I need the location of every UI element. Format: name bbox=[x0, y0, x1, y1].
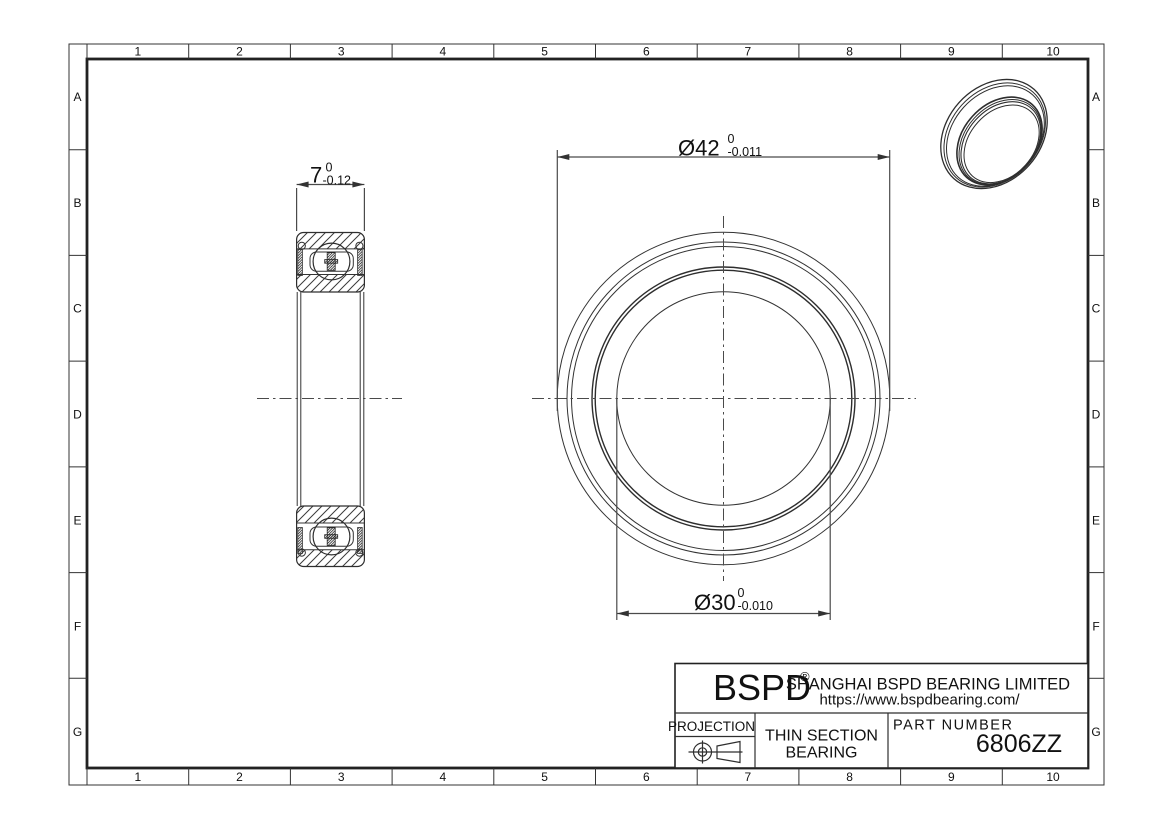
grid-col-label: 2 bbox=[236, 770, 243, 784]
grid-row-label: E bbox=[1092, 514, 1100, 528]
arrowhead-left bbox=[617, 611, 629, 617]
grid-row-label: G bbox=[73, 725, 82, 739]
grid-col-label: 7 bbox=[745, 770, 752, 784]
grid-row-label: B bbox=[1092, 196, 1100, 210]
grid-col-label: 7 bbox=[745, 45, 752, 59]
title-block: BSPD ® SHANGHAI BSPD BEARING LIMITED htt… bbox=[668, 664, 1088, 769]
grid-col-label: 10 bbox=[1046, 770, 1060, 784]
od-dim-tol-upper: 0 bbox=[728, 132, 735, 146]
grid-row-label: D bbox=[1092, 408, 1101, 422]
section-top-block bbox=[297, 233, 365, 293]
arrowhead-right bbox=[352, 182, 364, 188]
shield-left bbox=[298, 250, 303, 276]
bearing-drawing-svg: 1 2 3 4 5 6 7 8 9 10 1 2 3 4 5 6 7 8 9 1… bbox=[0, 0, 1170, 827]
grid-col-label: 10 bbox=[1046, 45, 1060, 59]
grid-col-label: 3 bbox=[338, 770, 345, 784]
arrowhead-right bbox=[818, 611, 830, 617]
arrowhead-right bbox=[878, 154, 890, 160]
grid-col-label: 9 bbox=[948, 45, 955, 59]
grid-col-label: 1 bbox=[135, 45, 142, 59]
projection-label: PROJECTION bbox=[668, 719, 755, 734]
shield-right bbox=[358, 250, 363, 276]
width-dimension: 7 0 -0.12 bbox=[297, 161, 365, 232]
arrowhead-left bbox=[297, 182, 309, 188]
grid-col-label: 6 bbox=[643, 45, 650, 59]
front-view: Ø42 0 -0.011 Ø30 0 -0.010 bbox=[532, 132, 916, 620]
grid-row-label: C bbox=[1092, 302, 1101, 316]
section-bottom-block bbox=[297, 506, 365, 567]
bore-dim-tol-upper: 0 bbox=[738, 586, 745, 600]
grid-col-label: 4 bbox=[440, 45, 447, 59]
width-dim-tol-lower: -0.12 bbox=[323, 174, 352, 188]
grid-col-label: 5 bbox=[541, 770, 548, 784]
grid-row-label: B bbox=[73, 196, 81, 210]
outer-ring-hatch bbox=[297, 233, 365, 249]
od-dim-value: Ø42 bbox=[678, 136, 720, 161]
rivet-flange bbox=[325, 535, 338, 539]
grid-col-label: 3 bbox=[338, 45, 345, 59]
grid-col-label: 2 bbox=[236, 45, 243, 59]
product-name-line2: BEARING bbox=[785, 745, 857, 762]
grid-col-label: 6 bbox=[643, 770, 650, 784]
od-dim-tol-lower: -0.011 bbox=[728, 145, 763, 159]
grid-row-label: E bbox=[73, 514, 81, 528]
outer-ring-hatch bbox=[297, 550, 365, 567]
part-number-value: 6806ZZ bbox=[976, 730, 1062, 758]
grid-row-label: F bbox=[1092, 620, 1099, 634]
isometric-view bbox=[919, 58, 1069, 210]
grid-row-label: G bbox=[1091, 725, 1100, 739]
rivet-flange bbox=[325, 260, 338, 264]
grid-row-labels-left: A B C D E F G bbox=[73, 90, 82, 739]
drawing-sheet: 1 2 3 4 5 6 7 8 9 10 1 2 3 4 5 6 7 8 9 1… bbox=[0, 0, 1170, 827]
grid-col-label: 8 bbox=[846, 770, 853, 784]
grid-row-label: A bbox=[73, 90, 81, 104]
grid-col-label: 4 bbox=[440, 770, 447, 784]
grid-col-label: 9 bbox=[948, 770, 955, 784]
company-website: https://www.bspdbearing.com/ bbox=[819, 692, 1020, 709]
bore-dim-tol-lower: -0.010 bbox=[738, 599, 773, 613]
grid-col-label: 1 bbox=[135, 770, 142, 784]
grid-row-label: F bbox=[74, 620, 81, 634]
arrowhead-left bbox=[557, 154, 569, 160]
inner-border bbox=[87, 59, 1088, 768]
inner-ring-hatch bbox=[297, 506, 365, 523]
grid-row-labels-right: A B C D E F G bbox=[1091, 90, 1100, 739]
grid-column-labels-bottom: 1 2 3 4 5 6 7 8 9 10 bbox=[135, 770, 1060, 784]
grid-col-label: 5 bbox=[541, 45, 548, 59]
grid-row-label: D bbox=[73, 408, 82, 422]
grid-col-label: 8 bbox=[846, 45, 853, 59]
grid-row-label: A bbox=[1092, 90, 1100, 104]
grid-row-ticks bbox=[69, 150, 1104, 679]
product-name-line1: THIN SECTION bbox=[765, 728, 878, 745]
section-view: 7 0 -0.12 bbox=[257, 161, 402, 567]
width-dim-value: 7 bbox=[310, 163, 322, 188]
grid-row-label: C bbox=[73, 302, 82, 316]
inner-ring-hatch bbox=[297, 275, 365, 293]
grid-column-labels-top: 1 2 3 4 5 6 7 8 9 10 bbox=[135, 45, 1060, 59]
width-dim-tol-upper: 0 bbox=[326, 161, 333, 175]
bore-dim-value: Ø30 bbox=[694, 590, 736, 615]
